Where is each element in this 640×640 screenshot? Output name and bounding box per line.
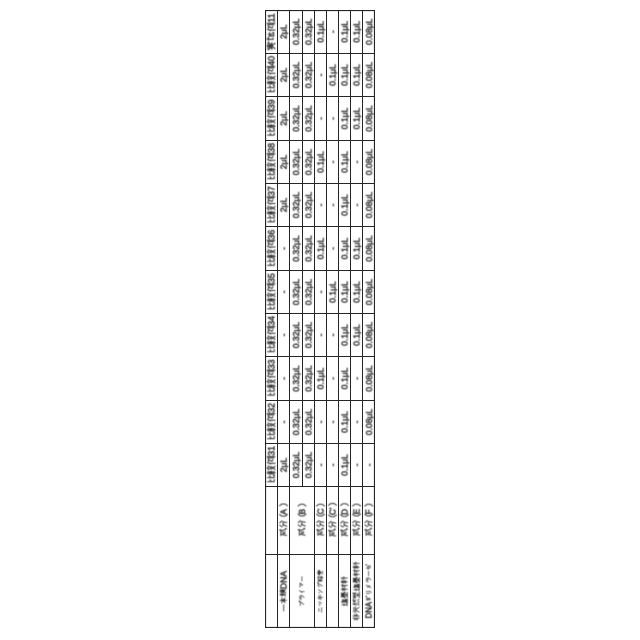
svg-text:-: - bbox=[327, 160, 337, 163]
svg-text:0.1μL: 0.1μL bbox=[339, 324, 349, 346]
svg-text:11: 11 bbox=[266, 13, 276, 22]
svg-text:-: - bbox=[351, 463, 361, 466]
svg-text:-: - bbox=[278, 247, 288, 250]
svg-text:B: B bbox=[297, 508, 306, 514]
svg-text:0.1μL: 0.1μL bbox=[339, 454, 349, 476]
svg-text:C': C' bbox=[328, 507, 337, 515]
svg-text:31: 31 bbox=[266, 446, 276, 456]
svg-text:0.1μL: 0.1μL bbox=[315, 151, 325, 173]
svg-text:0.1μL: 0.1μL bbox=[327, 281, 337, 303]
svg-text:C: C bbox=[316, 508, 325, 514]
svg-text:0.1μL: 0.1μL bbox=[339, 107, 349, 129]
svg-text:-: - bbox=[315, 333, 325, 336]
svg-text:0.32μL: 0.32μL bbox=[303, 409, 313, 436]
svg-text:0.32μL: 0.32μL bbox=[291, 192, 301, 219]
svg-text:0.32μL: 0.32μL bbox=[291, 279, 301, 306]
svg-text:0.32μL: 0.32μL bbox=[303, 235, 313, 262]
svg-text:0.1μL: 0.1μL bbox=[339, 151, 349, 173]
svg-text:F: F bbox=[364, 509, 373, 514]
svg-text:2μL: 2μL bbox=[278, 111, 288, 126]
svg-text:0.08μL: 0.08μL bbox=[363, 365, 373, 392]
svg-text:0.32μL: 0.32μL bbox=[303, 365, 313, 392]
svg-text:0.08μL: 0.08μL bbox=[363, 149, 373, 176]
svg-text:-: - bbox=[315, 420, 325, 423]
svg-text:0.08μL: 0.08μL bbox=[363, 322, 373, 349]
svg-text:32: 32 bbox=[266, 403, 276, 413]
svg-text:0.1μL: 0.1μL bbox=[327, 64, 337, 86]
svg-text:0.08μL: 0.08μL bbox=[363, 62, 373, 89]
svg-text:-: - bbox=[351, 203, 361, 206]
svg-text:-: - bbox=[327, 420, 337, 423]
svg-text:0.32μL: 0.32μL bbox=[291, 18, 301, 45]
svg-text:0.32μL: 0.32μL bbox=[291, 452, 301, 479]
svg-text:0.1μL: 0.1μL bbox=[351, 21, 361, 43]
svg-text:-: - bbox=[327, 333, 337, 336]
svg-text:0.32μL: 0.32μL bbox=[291, 62, 301, 89]
svg-text:-: - bbox=[278, 290, 288, 293]
svg-text:0.08μL: 0.08μL bbox=[363, 18, 373, 45]
svg-text:0.1μL: 0.1μL bbox=[339, 411, 349, 433]
svg-text:0.32μL: 0.32μL bbox=[291, 149, 301, 176]
svg-text:36: 36 bbox=[266, 230, 276, 240]
svg-text:2μL: 2μL bbox=[278, 198, 288, 213]
svg-text:-: - bbox=[327, 377, 337, 380]
svg-text:0.08μL: 0.08μL bbox=[363, 192, 373, 219]
svg-text:0.32μL: 0.32μL bbox=[291, 235, 301, 262]
svg-text:2μL: 2μL bbox=[278, 155, 288, 170]
svg-text:0.32μL: 0.32μL bbox=[303, 18, 313, 45]
svg-text:-: - bbox=[278, 333, 288, 336]
svg-text:-: - bbox=[327, 203, 337, 206]
svg-text:0.1μL: 0.1μL bbox=[351, 237, 361, 259]
svg-text:0.1μL: 0.1μL bbox=[351, 324, 361, 346]
svg-text:-: - bbox=[327, 117, 337, 120]
svg-text:0.32μL: 0.32μL bbox=[303, 279, 313, 306]
svg-text:33: 33 bbox=[266, 359, 276, 369]
svg-text:0.32μL: 0.32μL bbox=[303, 192, 313, 219]
svg-text:0.1μL: 0.1μL bbox=[351, 107, 361, 129]
svg-text:0.32μL: 0.32μL bbox=[303, 322, 313, 349]
svg-text:2μL: 2μL bbox=[278, 458, 288, 473]
svg-text:0.32μL: 0.32μL bbox=[303, 149, 313, 176]
svg-text:DNA: DNA bbox=[364, 601, 373, 618]
svg-text:-: - bbox=[315, 117, 325, 120]
svg-text:-: - bbox=[327, 247, 337, 250]
svg-text:DNA: DNA bbox=[278, 571, 288, 589]
svg-text:-: - bbox=[315, 203, 325, 206]
svg-text:0.08μL: 0.08μL bbox=[363, 409, 373, 436]
svg-text:0.1μL: 0.1μL bbox=[339, 64, 349, 86]
svg-text:0.1μL: 0.1μL bbox=[315, 21, 325, 43]
svg-text:0.32μL: 0.32μL bbox=[303, 452, 313, 479]
svg-text:0.1μL: 0.1μL bbox=[351, 64, 361, 86]
svg-text:-: - bbox=[315, 73, 325, 76]
svg-text:38: 38 bbox=[266, 143, 276, 153]
svg-text:D: D bbox=[340, 509, 349, 515]
svg-text:0.08μL: 0.08μL bbox=[363, 279, 373, 306]
svg-text:37: 37 bbox=[266, 186, 276, 196]
svg-text:0.32μL: 0.32μL bbox=[291, 409, 301, 436]
svg-text:0.08μL: 0.08μL bbox=[363, 235, 373, 262]
svg-text:39: 39 bbox=[266, 99, 276, 109]
svg-text:2μL: 2μL bbox=[278, 24, 288, 39]
svg-text:0.1μL: 0.1μL bbox=[339, 367, 349, 389]
svg-text:0.32μL: 0.32μL bbox=[303, 62, 313, 89]
svg-text:2μL: 2μL bbox=[278, 68, 288, 83]
svg-text:0.1μL: 0.1μL bbox=[315, 367, 325, 389]
svg-text:35: 35 bbox=[266, 273, 276, 283]
svg-text:0.32μL: 0.32μL bbox=[291, 322, 301, 349]
svg-text:0.1μL: 0.1μL bbox=[339, 237, 349, 259]
svg-text:A: A bbox=[279, 509, 288, 515]
svg-text:-: - bbox=[315, 463, 325, 466]
svg-text:-: - bbox=[351, 160, 361, 163]
svg-text:0.1μL: 0.1μL bbox=[315, 237, 325, 259]
svg-text:0.1μL: 0.1μL bbox=[339, 281, 349, 303]
svg-text:0.32μL: 0.32μL bbox=[291, 365, 301, 392]
svg-text:0.1μL: 0.1μL bbox=[339, 21, 349, 43]
svg-text:-: - bbox=[363, 463, 373, 466]
svg-text:0.1μL: 0.1μL bbox=[351, 281, 361, 303]
svg-text:-: - bbox=[351, 420, 361, 423]
svg-text:0.1μL: 0.1μL bbox=[339, 194, 349, 216]
svg-text:-: - bbox=[278, 377, 288, 380]
svg-text:-: - bbox=[327, 463, 337, 466]
svg-text:0.32μL: 0.32μL bbox=[303, 105, 313, 132]
svg-text:0.08μL: 0.08μL bbox=[363, 105, 373, 132]
svg-text:34: 34 bbox=[266, 316, 276, 326]
svg-text:-: - bbox=[278, 420, 288, 423]
svg-text:-: - bbox=[327, 30, 337, 33]
svg-text:0.32μL: 0.32μL bbox=[291, 105, 301, 132]
svg-text:-: - bbox=[351, 377, 361, 380]
svg-text:40: 40 bbox=[266, 56, 276, 66]
svg-text:E: E bbox=[352, 508, 361, 514]
svg-text:-: - bbox=[315, 290, 325, 293]
